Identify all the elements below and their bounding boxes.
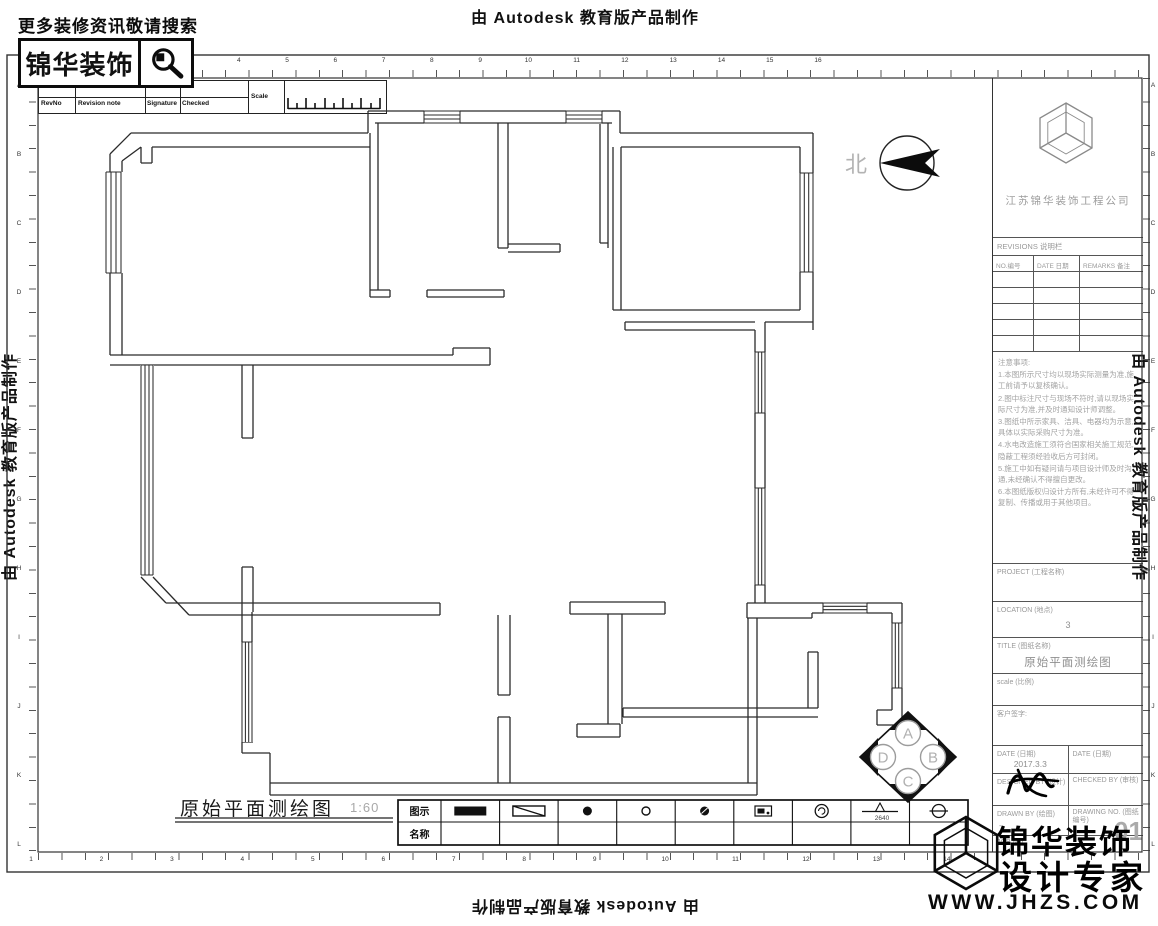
- weak-electric-box-icon: [513, 806, 545, 816]
- legend-item-name: [675, 823, 734, 843]
- sheet-title-label: TITLE (图纸名称): [997, 641, 1051, 651]
- compass-d-label: D: [878, 750, 889, 767]
- tick-band-right: [1143, 78, 1150, 852]
- legend-item-name: [558, 823, 617, 843]
- drain-pipe-icon: [642, 807, 650, 815]
- revstrip-scale-label: Scale: [251, 93, 268, 100]
- date-value: 2017.3.3: [993, 759, 1068, 769]
- ruler-top: 12345678910111213141516: [86, 57, 826, 64]
- compass-a-label: A: [903, 726, 913, 743]
- note-line: 4.水电改造施工须符合国家相关施工规范,隐蔽工程须经验收后方可封闭。: [998, 439, 1139, 461]
- compass-b-label: B: [928, 750, 938, 767]
- ruler-left: ABCDEFGHIJKL: [13, 82, 25, 848]
- plan-scale: 1:60: [350, 800, 379, 815]
- plan-title: 原始平面测绘图: [180, 794, 334, 821]
- revstrip-checked-label: Checked: [182, 100, 209, 107]
- brand-name: 锦华装饰: [21, 41, 138, 85]
- location-row: LOCATION (地点) 3: [993, 602, 1143, 638]
- revisions-header-row: REVISIONS 说明栏: [993, 238, 1143, 256]
- sheet-frame: [7, 55, 1149, 872]
- legend-symbols: 2640: [454, 803, 948, 822]
- location-label: LOCATION (地点): [997, 605, 1053, 615]
- note-line: 6.本图纸版权归设计方所有,未经许可不得复制、传播或用于其他项目。: [998, 486, 1139, 508]
- title-block: 江苏锦华装饰工程公司 REVISIONS 说明栏 NO.编号 DATE 日期 R…: [992, 78, 1143, 852]
- revstrip-revno-label: RevNo: [41, 100, 62, 107]
- rev-col-no: NO.编号: [993, 256, 1033, 271]
- rev-col-date: DATE 日期: [1033, 256, 1079, 271]
- legend-item-name: [851, 823, 910, 843]
- floor-plan-windows: [105, 110, 903, 742]
- floor-plan-walls: [110, 111, 902, 795]
- legend-item-name: [617, 823, 676, 843]
- tick-band-bottom: [38, 853, 1142, 860]
- date-label: DATE (日期): [997, 749, 1036, 759]
- notes-section: 注意事项: 1.本图所示尺寸均以现场实际测量为准,施工前请予以复核确认。2.图中…: [993, 352, 1143, 564]
- sheet-title-value: 原始平面测绘图: [993, 654, 1143, 670]
- location-value: 3: [993, 620, 1143, 630]
- tick-band-top: [38, 70, 1142, 77]
- autodesk-banner-bottom: 由 Autodesk 教育版产品制作: [415, 896, 755, 920]
- note-line: 2.图中标注尺寸与现场不符时,请以现场实际尺寸为准,并及时通知设计师调整。: [998, 393, 1139, 415]
- date-row: DATE (日期) 2017.3.3 DATE (日期): [993, 746, 1143, 774]
- tick-band-left: [29, 78, 36, 852]
- toilet-drain-icon: [583, 807, 592, 816]
- ceiling-height-value: 2640: [875, 815, 890, 822]
- company-name: 江苏锦华装饰工程公司: [993, 193, 1143, 208]
- note-line: 3.图纸中所示家具、洁具、电器均为示意,具体以实际采购尺寸为准。: [998, 416, 1139, 438]
- search-icon: [138, 41, 191, 85]
- legend-item-name: [909, 823, 968, 843]
- designed-row: DESIGNED BY (设计) CHECKED BY (审核): [993, 774, 1143, 806]
- legend-item-name: [734, 823, 793, 843]
- autodesk-banner-top: 由 Autodesk 教育版产品制作: [415, 4, 755, 28]
- legend-name-row-label: 名称: [398, 826, 441, 841]
- checked-by-label: CHECKED BY (审核): [1073, 777, 1139, 785]
- scale-label: scale (比例): [997, 677, 1034, 687]
- revisions-header-label: REVISIONS 说明栏: [997, 241, 1062, 252]
- designed-by-label: DESIGNED BY (设计): [997, 777, 1065, 787]
- notes-title: 注意事项:: [998, 357, 1139, 368]
- north-label: 北: [845, 147, 867, 179]
- legend-item-name: [792, 823, 851, 843]
- compass-c-label: C: [903, 774, 914, 791]
- date2-label: DATE (日期): [1073, 749, 1112, 759]
- orientation-compass-icon: A B C D: [860, 712, 956, 802]
- ac-hole-icon: [815, 805, 828, 818]
- revstrip-signature-label: Signature: [147, 100, 177, 107]
- gas-meter-icon: [755, 806, 772, 816]
- floor-drain-icon: [700, 807, 709, 816]
- legend-item-name: [500, 823, 559, 843]
- project-label: PROJECT (工程名称): [997, 567, 1064, 577]
- footer-website: WWW.JHZS.COM: [928, 891, 1143, 915]
- note-line: 5.施工中如有疑问请与项目设计师及时沟通,未经确认不得擅自更改。: [998, 463, 1139, 485]
- sheet-linework: A B C D: [0, 0, 1158, 926]
- revisions-columns-row: NO.编号 DATE 日期 REMARKS 备注: [993, 256, 1143, 272]
- notes-lines: 1.本图所示尺寸均以现场实际测量为准,施工前请予以复核确认。2.图中标注尺寸与现…: [998, 369, 1139, 508]
- client-sign-label: 客户签字:: [997, 709, 1027, 719]
- scale-row: scale (比例): [993, 674, 1143, 706]
- legend-names: [441, 823, 968, 843]
- title-row: TITLE (图纸名称) 原始平面测绘图: [993, 638, 1143, 674]
- legend-item-name: [441, 823, 500, 843]
- project-row: PROJECT (工程名称): [993, 564, 1143, 602]
- search-hint-text: 更多装修资讯敬请搜索: [18, 12, 198, 37]
- water-supply-icon: [930, 805, 949, 818]
- main-electric-box-icon: [454, 807, 486, 816]
- drawing-sheet: 由 Autodesk 教育版产品制作 由 Autodesk 教育版产品制作 由 …: [0, 0, 1158, 926]
- revstrip-note-label: Revision note: [78, 100, 121, 107]
- note-line: 1.本图所示尺寸均以现场实际测量为准,施工前请予以复核确认。: [998, 369, 1139, 391]
- title-block-logo-section: 江苏锦华装饰工程公司: [993, 78, 1143, 238]
- brand-logo-box: 锦华装饰: [18, 38, 194, 88]
- client-sign-row: 客户签字:: [993, 706, 1143, 746]
- rev-col-remarks: REMARKS 备注: [1079, 256, 1143, 271]
- ceiling-height-icon: [862, 803, 898, 812]
- north-arrow-icon: [880, 136, 940, 190]
- legend-symbol-row-label: 图示: [398, 803, 441, 818]
- revisions-empty-rows: [993, 272, 1143, 352]
